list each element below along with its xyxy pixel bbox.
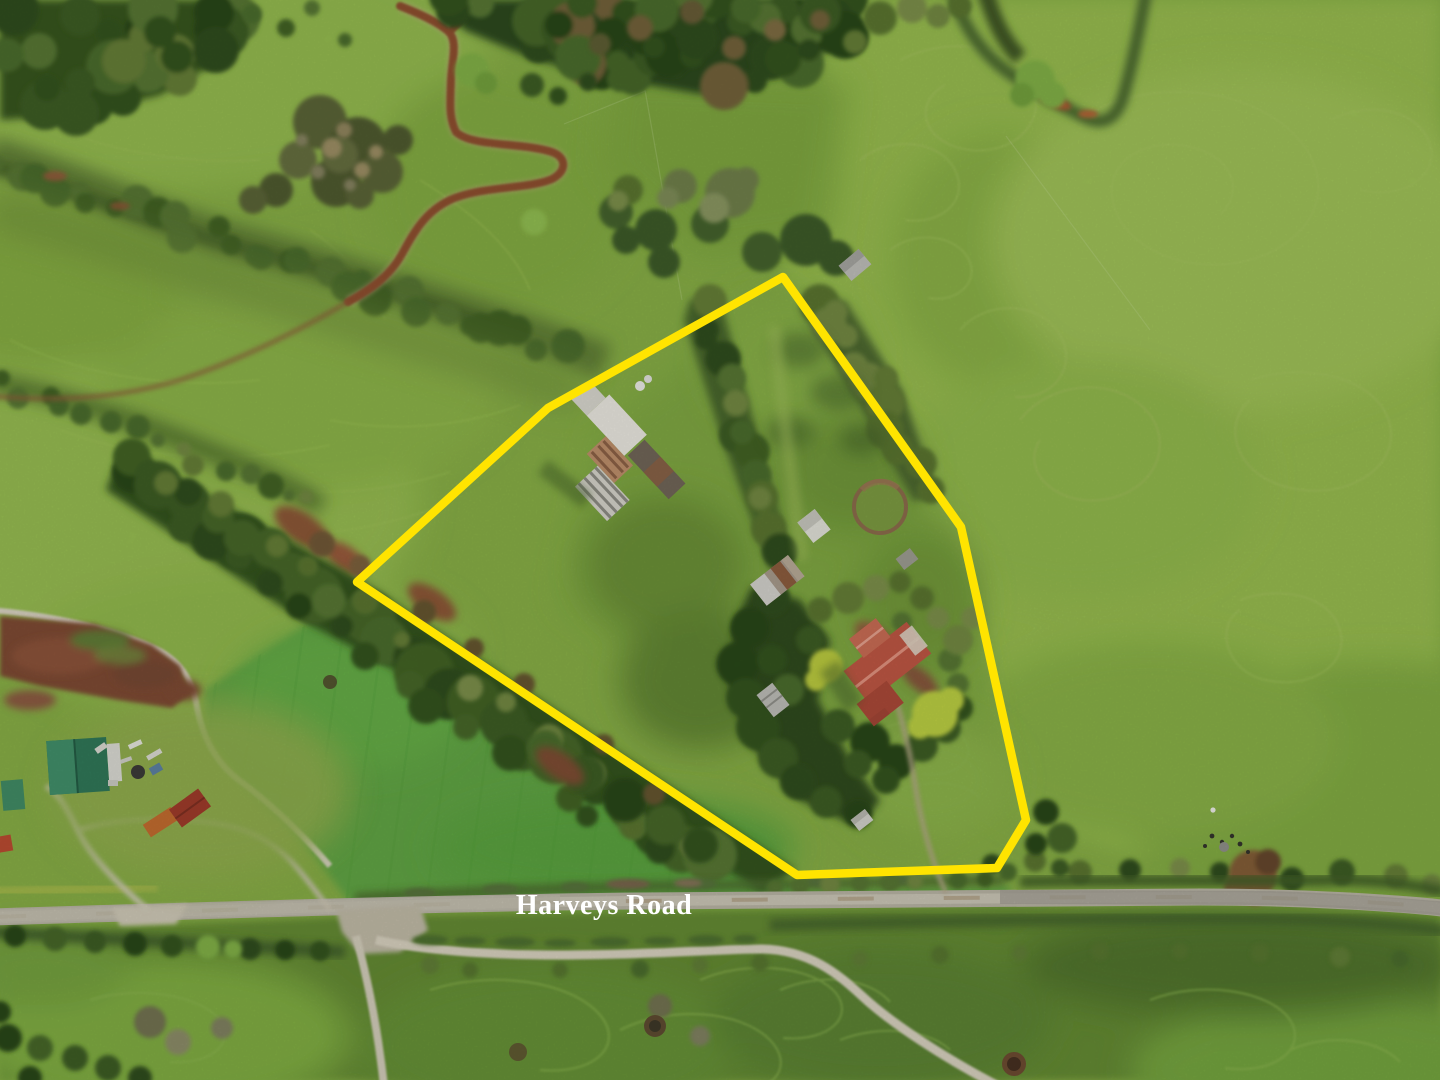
svg-text:Harveys Road: Harveys Road (516, 890, 692, 921)
